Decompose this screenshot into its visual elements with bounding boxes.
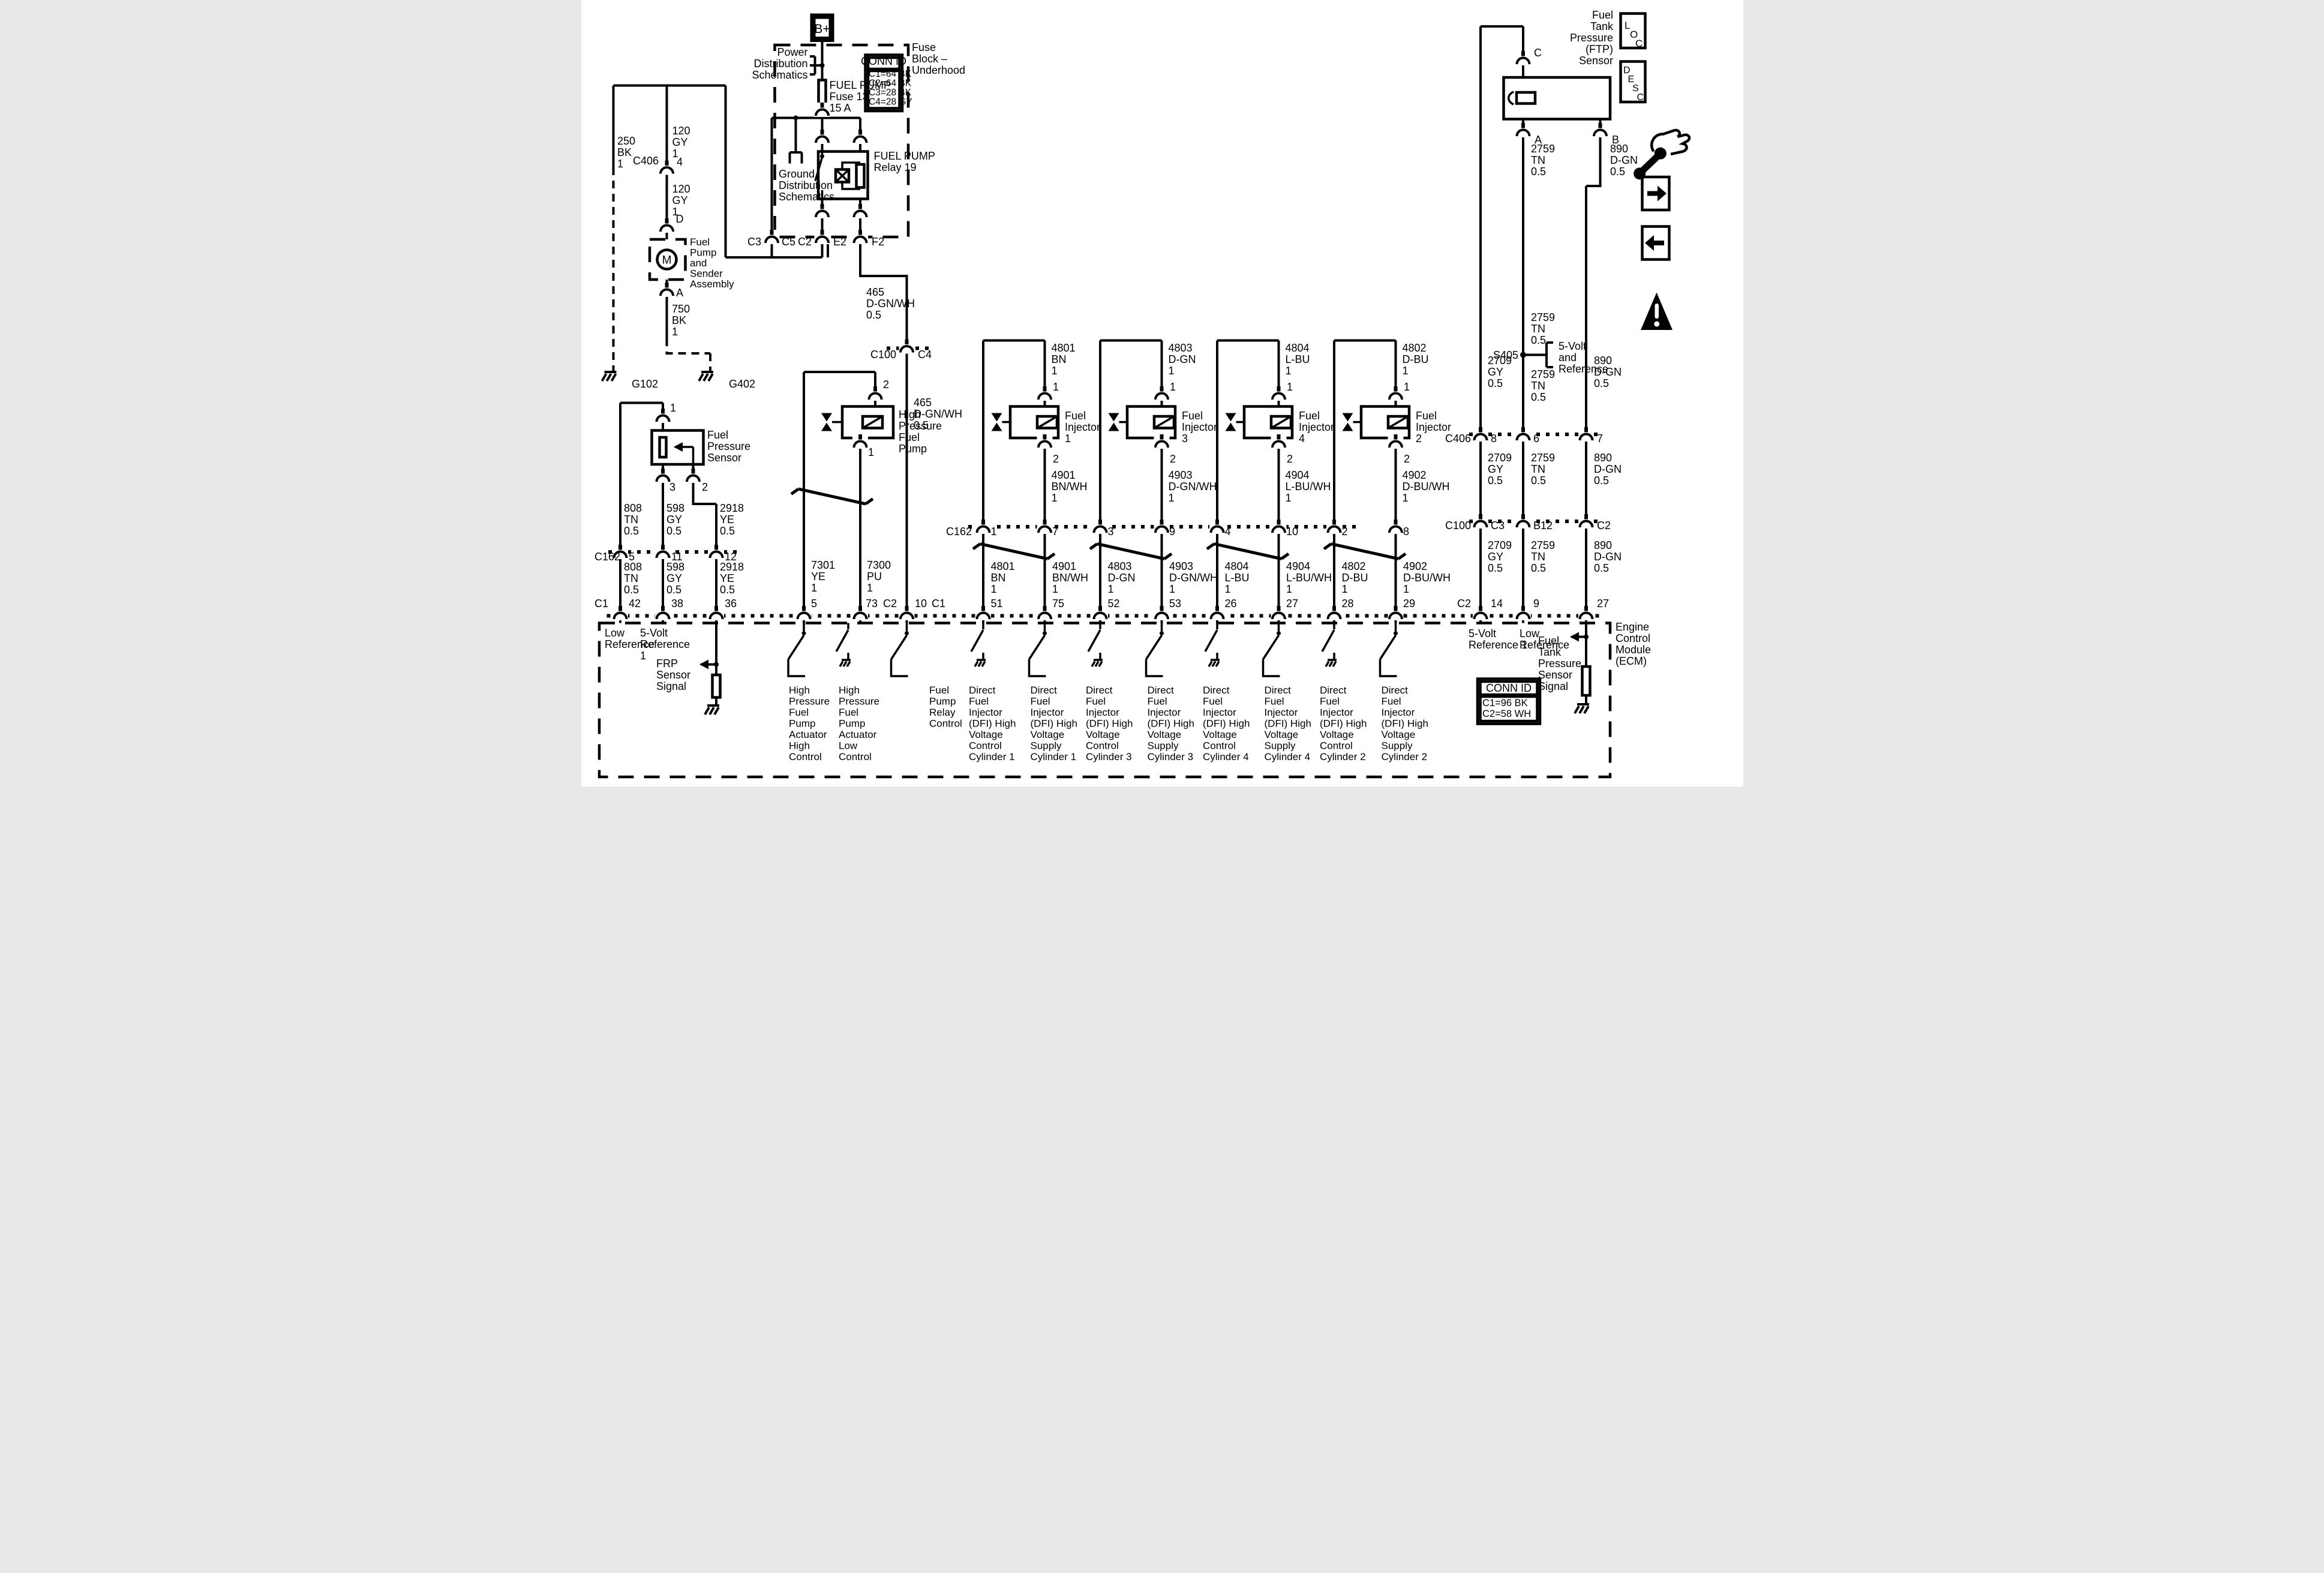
- inj2-pin2: 2: [1404, 453, 1410, 465]
- inj1-ecm-c: DirectFuelInjector(DFI) HighVoltageContr…: [969, 685, 1016, 763]
- hp-pin2: 2: [883, 379, 889, 391]
- inj3-mid-ckt-s: 4903D-GN/WH1: [1169, 560, 1218, 595]
- pin-a-pump: A: [676, 287, 683, 299]
- junction-ground-tap: [793, 116, 798, 121]
- wire-598-b: 598GY0.5: [666, 561, 684, 596]
- fuse-block-title: FuseBlock –Underhood: [912, 41, 965, 76]
- s405-splice-dot: [1520, 352, 1526, 358]
- ftp-pin-c: C: [1534, 47, 1542, 59]
- fuel-injector-3-symbol: [1108, 407, 1175, 439]
- pin-f2-fb: F2: [872, 236, 884, 248]
- inj1-sup-ckt: 4901BN/WH1: [1051, 469, 1087, 504]
- pin-c2-fb: C2: [797, 236, 811, 248]
- inj1-name: FuelInjector1: [1065, 410, 1100, 445]
- pin-d-pump: D: [675, 213, 683, 225]
- ecm-5v-ref-right: 5-VoltReference 1: [1469, 628, 1527, 651]
- inj4-ecm-s: DirectFuelInjector(DFI) HighVoltageSuppl…: [1264, 685, 1311, 763]
- inj4-mid-ckt-s: 4904L-BU/WH1: [1286, 560, 1332, 595]
- power-dist-label: PowerDistributionSchematics: [752, 46, 807, 81]
- g402-ground-icon: [699, 372, 713, 381]
- ground-g402: G402: [729, 378, 755, 390]
- conn-c162-mid: C162: [945, 526, 971, 538]
- fps-pin2: 2: [702, 481, 708, 493]
- inj2-top-ckt: 4802D-BU1: [1402, 342, 1428, 377]
- fps-label: FuelPressureSensor: [707, 429, 750, 464]
- fps-pin3: 3: [669, 481, 675, 493]
- ecm-5v-ref-left: 5-VoltReference1: [640, 627, 690, 662]
- inj2-ecm-c: DirectFuelInjector(DFI) HighVoltageContr…: [1320, 685, 1367, 763]
- wire-2759-s405: 2759TN0.5: [1531, 311, 1555, 346]
- ecm-title: EngineControlModule(ECM): [1616, 621, 1651, 667]
- wire-598-a: 598GY0.5: [666, 502, 684, 537]
- conn-id-1-header: CONN ID: [861, 55, 906, 67]
- wire-2709-seg1: 2709GY0.5: [1488, 355, 1512, 389]
- wire-2759-seg3: 2759TN0.5: [1531, 452, 1555, 487]
- conn-c406-right: C406: [1445, 433, 1470, 445]
- conn-c2-ecm-mid: C2: [882, 598, 896, 610]
- c2-pin10: 10: [915, 598, 927, 610]
- fuel-pump-relay-label: FUEL PUMPRelay 19: [873, 150, 935, 173]
- ecm-hp-high: HighPressureFuelPumpActuatorHighControl: [789, 685, 830, 763]
- connector-rows-dotted: [606, 349, 1604, 616]
- inj3-c1-c: 52: [1107, 598, 1119, 610]
- crossover-inj2: [1324, 544, 1406, 559]
- inj1-c1-c: 51: [990, 598, 1002, 610]
- c1-pin36: 36: [725, 598, 737, 610]
- inj1-mid-ckt-s: 4901BN/WH1: [1052, 560, 1088, 595]
- wire-2918-b: 2918YE0.5: [720, 561, 744, 596]
- inj1-mid-ckt-c: 4801BN1: [990, 560, 1014, 595]
- ecm-hp-low: HighPressureFuelPumpActuatorLowControl: [839, 685, 879, 763]
- conn-c100-right: C100: [1445, 520, 1470, 532]
- wire-7301: 7301YE1: [811, 559, 835, 594]
- pin-4-c406: 4: [677, 156, 683, 168]
- conn-id-2-header: CONN ID: [1486, 682, 1532, 694]
- inj2-ecm-s: DirectFuelInjector(DFI) HighVoltageSuppl…: [1381, 685, 1428, 763]
- conn-c100-mid: C100: [870, 349, 896, 361]
- ecm-fp-relay-ctrl: FuelPumpRelayControl: [929, 685, 962, 730]
- inj3-top-ckt: 4803D-GN1: [1168, 342, 1196, 377]
- wire-7300: 7300PU1: [867, 559, 891, 594]
- back-arrow-button[interactable]: [1642, 227, 1669, 260]
- wire-2759-top: 2759TN0.5: [1531, 143, 1555, 178]
- c2-pin14: 14: [1491, 598, 1503, 610]
- wire-2709-seg3: 2709GY0.5: [1488, 539, 1512, 574]
- inj1-top-ckt: 4801BN1: [1051, 342, 1075, 377]
- conn-c1-mid: C1: [932, 598, 945, 610]
- inj4-mid-ckt-c: 4804L-BU1: [1224, 560, 1249, 595]
- inj4-sup-ckt: 4904L-BU/WH1: [1285, 469, 1331, 504]
- ecm-frp-signal: FRPSensorSignal: [656, 658, 690, 692]
- pin-c3-fb: C3: [747, 236, 761, 248]
- wire-120gy-bot: 120GY1: [672, 183, 690, 218]
- inj3-sup-ckt: 4903D-GN/WH1: [1168, 469, 1217, 504]
- fuel-pressure-sensor-symbol: [651, 431, 703, 465]
- inj2-c162-c: 2: [1341, 526, 1347, 538]
- inj4-ecm-c: DirectFuelInjector(DFI) HighVoltageContr…: [1203, 685, 1250, 763]
- wire-2759-seg4: 2759TN0.5: [1531, 539, 1555, 574]
- fuel-injector-4-symbol: [1225, 407, 1292, 439]
- conn-c162-left: C162: [594, 551, 620, 563]
- inj2-c1-c: 28: [1341, 598, 1353, 610]
- inj4-pin2: 2: [1287, 453, 1293, 465]
- inj3-pin2: 2: [1170, 453, 1176, 465]
- c406-pin6: 6: [1533, 433, 1539, 445]
- wires-solid: [613, 26, 1600, 706]
- inj2-pin1: 1: [1404, 381, 1410, 393]
- g102-ground-icon: [602, 372, 616, 381]
- conn-c406-left: C406: [632, 155, 658, 167]
- c100-pin-c2: C2: [1597, 520, 1611, 532]
- fps-pin1: 1: [670, 402, 676, 414]
- pin-c5-fb: C5: [782, 236, 795, 248]
- ground-g102: G102: [632, 378, 658, 390]
- c2-pin27: 27: [1597, 598, 1609, 610]
- inj4-c162-c: 4: [1224, 526, 1230, 538]
- inj3-c1-s: 53: [1169, 598, 1181, 610]
- ftp-sensor-symbol: [1503, 77, 1610, 119]
- ecm-internals: [699, 623, 1590, 715]
- junction-b-plus-tap: [819, 63, 824, 68]
- c2-pin9: 9: [1533, 598, 1539, 610]
- inj4-c162-s: 10: [1286, 526, 1298, 538]
- fuel-pump-assembly-label: FuelPumpandSenderAssembly: [690, 236, 734, 290]
- inj4-pin1: 1: [1287, 381, 1293, 393]
- conn-c1-left: C1: [594, 598, 608, 610]
- inj4-name: FuelInjector4: [1299, 410, 1334, 445]
- labels-layer: FuseBlock –UnderhoodCONN IDC1=64 BKC2=64…: [594, 9, 1651, 763]
- wire-2918-a: 2918YE0.5: [720, 502, 744, 537]
- inj2-sup-ckt: 4902D-BU/WH1: [1402, 469, 1449, 504]
- pin-c4-c100: C4: [918, 349, 932, 361]
- crossover-inj4: [1207, 544, 1289, 559]
- c100-pin-c3: C3: [1491, 520, 1505, 532]
- wire-890-seg1: 890D-GN0.5: [1594, 355, 1622, 389]
- inj4-top-ckt: 4804L-BU1: [1285, 342, 1310, 377]
- fuel-pump-motor: M: [657, 250, 676, 269]
- c406-pin8: 8: [1491, 433, 1497, 445]
- c1-pin5: 5: [811, 598, 817, 610]
- ftp-title: FuelTankPressure(FTP)Sensor: [1569, 9, 1613, 67]
- inj3-pin1: 1: [1170, 381, 1176, 393]
- c406-pin7: 7: [1597, 433, 1603, 445]
- inj4-c1-s: 27: [1286, 598, 1298, 610]
- c1-pin73: 73: [866, 598, 878, 610]
- svg-text:M: M: [662, 254, 671, 267]
- wire-808-b: 808TN0.5: [624, 561, 642, 596]
- wiring-diagram-page: M: [581, 0, 1743, 786]
- inj3-name: FuelInjector3: [1182, 410, 1217, 445]
- inj4-c1-c: 26: [1224, 598, 1236, 610]
- wrench-hand-icon[interactable]: [1634, 130, 1689, 179]
- inj2-mid-ckt-s: 4902D-BU/WH1: [1403, 560, 1451, 595]
- inj3-mid-ckt-c: 4803D-GN1: [1107, 560, 1135, 595]
- crossover-inj1: [973, 544, 1055, 559]
- inj1-ecm-s: DirectFuelInjector(DFI) HighVoltageSuppl…: [1030, 685, 1077, 763]
- conn-c2-ecm-right: C2: [1457, 598, 1470, 610]
- wire-2759-seg2: 2759TN0.5: [1531, 368, 1555, 403]
- c100-pin-b12: B12: [1533, 520, 1553, 532]
- hp-pin1: 1: [868, 446, 874, 458]
- c1-pin42: 42: [629, 598, 641, 610]
- hp-fuel-pump-symbol: [821, 407, 893, 439]
- wire-890-seg3: 890D-GN0.5: [1594, 539, 1622, 574]
- inj1-c162-s: 7: [1052, 526, 1058, 538]
- inj3-ecm-s: DirectFuelInjector(DFI) HighVoltageSuppl…: [1147, 685, 1194, 763]
- inj3-c162-s: 9: [1169, 526, 1175, 538]
- bplus-label: B+: [814, 22, 830, 36]
- inj3-ecm-c: DirectFuelInjector(DFI) HighVoltageContr…: [1086, 685, 1133, 763]
- inj1-c1-s: 75: [1052, 598, 1064, 610]
- wire-2709-seg2: 2709GY0.5: [1488, 452, 1512, 487]
- inj2-c1-s: 29: [1403, 598, 1415, 610]
- wire-808-a: 808TN0.5: [624, 502, 642, 537]
- inj1-pin2: 2: [1053, 453, 1059, 465]
- wire-120gy-top: 120GY1: [672, 125, 690, 160]
- crossover-inj3: [1090, 544, 1172, 559]
- fuel-injector-1-symbol: [991, 407, 1058, 439]
- inj3-c162-c: 3: [1107, 526, 1113, 538]
- inj2-mid-ckt-c: 4802D-BU1: [1341, 560, 1368, 595]
- inj2-c162-s: 8: [1403, 526, 1409, 538]
- wire-890-seg2: 890D-GN0.5: [1594, 452, 1622, 487]
- wire-750bk: 750BK1: [672, 303, 690, 338]
- inj1-pin1: 1: [1053, 381, 1059, 393]
- inj1-c162-c: 1: [990, 526, 996, 538]
- c1-pin38: 38: [671, 598, 683, 610]
- wire-890-top: 890D-GN0.5: [1610, 143, 1638, 178]
- pin-e2-fb: E2: [833, 236, 846, 248]
- fuel-injector-2-symbol: [1342, 407, 1409, 439]
- warning-icon[interactable]: [1641, 293, 1673, 331]
- conn-id-2-rows: C1=96 BKC2=58 WH: [1482, 698, 1531, 719]
- forward-arrow-button[interactable]: [1642, 177, 1669, 210]
